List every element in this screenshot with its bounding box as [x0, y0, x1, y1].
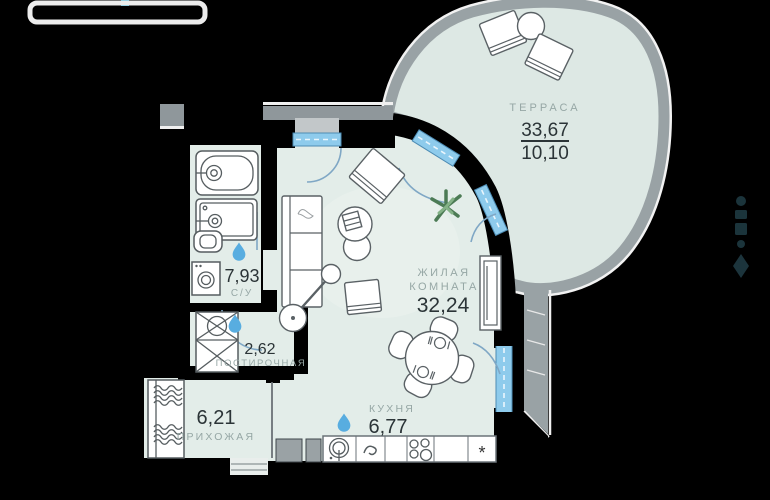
- bathroom-label: С/У: [231, 288, 253, 299]
- terrace-label: ТЕРРАСА: [509, 102, 580, 114]
- kitchen-area: 6,77: [369, 416, 408, 438]
- balcony-door: [495, 338, 513, 420]
- hallway-label: ПРИХОЖАЯ: [177, 431, 256, 443]
- terrace-area-total: 33,67: [521, 120, 569, 141]
- fraction-line: [521, 140, 569, 142]
- laundry-label: ПОСТИРОЧНАЯ: [216, 358, 307, 369]
- toilet: [194, 231, 222, 252]
- bathroom-area: 7,93: [224, 266, 259, 286]
- living-window: [293, 133, 341, 146]
- living-area: 32,24: [417, 294, 470, 317]
- kitchen-label: КУХНЯ: [369, 403, 415, 415]
- living-label-2: КОМНАТА: [409, 281, 479, 293]
- entrance-threshold: [230, 458, 268, 475]
- living-label-1: ЖИЛАЯ: [417, 267, 470, 279]
- kitchen-counter: *: [276, 436, 496, 463]
- bathtub: [196, 151, 258, 195]
- coffee-table: [338, 207, 372, 241]
- hallway-area: 6,21: [197, 407, 236, 429]
- floor-plan: * ТЕРРАСА 33,67 10,10 ЖИЛАЯ КОМНАТА 32,2…: [0, 0, 770, 500]
- kitchen-cabinet-gray: [276, 439, 302, 462]
- laundry-area: 2,62: [244, 341, 275, 358]
- radiator-panel: [480, 256, 501, 330]
- freezer-symbol: *: [478, 443, 485, 463]
- terrace-area-reduced: 10,10: [521, 143, 569, 164]
- armchair-bottom: [344, 279, 381, 314]
- kitchen-cabinet-gray: [306, 439, 321, 462]
- exterior-ledge: [524, 288, 550, 437]
- wardrobe: [148, 380, 184, 458]
- washing-machine: [192, 262, 220, 295]
